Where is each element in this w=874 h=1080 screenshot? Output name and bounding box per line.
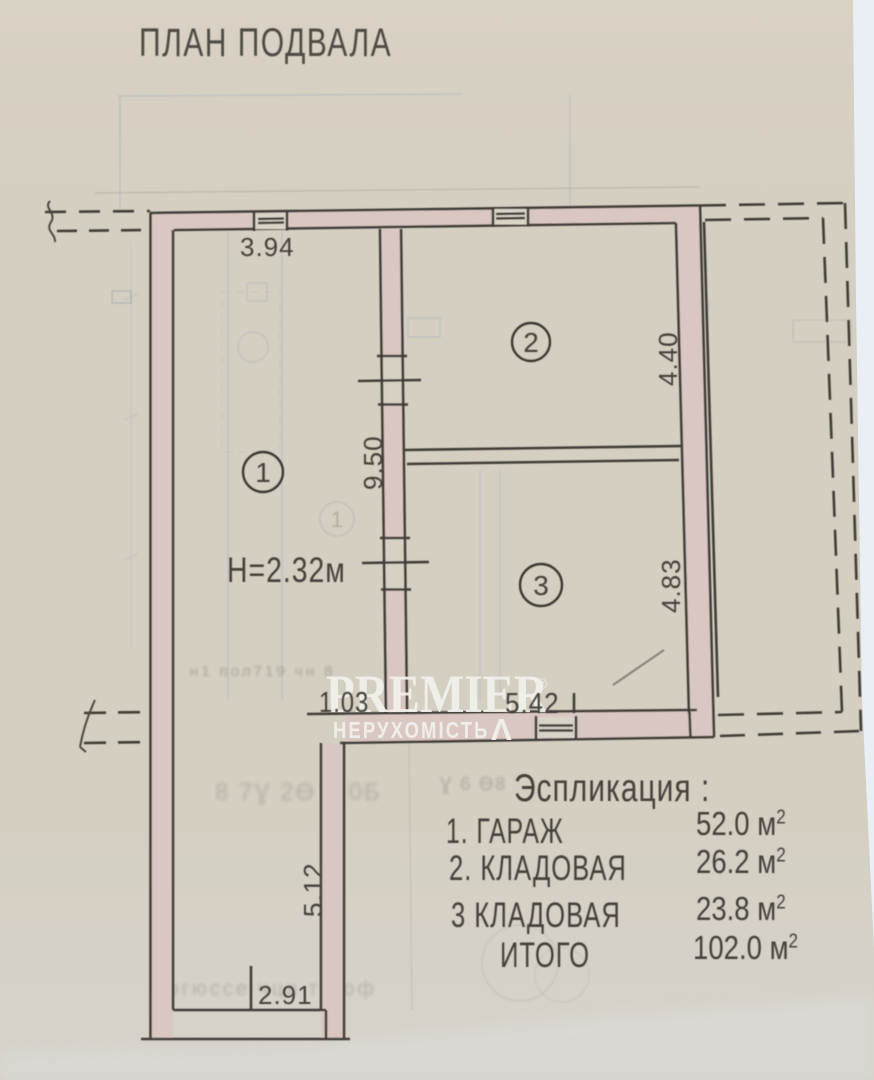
svg-text:2.91: 2.91 xyxy=(258,980,313,1010)
svg-text:3.94: 3.94 xyxy=(240,232,295,262)
svg-text:ИТОГО: ИТОГО xyxy=(500,935,590,975)
svg-text:9.50: 9.50 xyxy=(358,435,388,490)
svg-text:H=2.32м: H=2.32м xyxy=(227,550,346,590)
svg-text:52.0 м2: 52.0 м2 xyxy=(696,806,786,843)
svg-text:Эспликация :: Эспликация : xyxy=(514,767,710,810)
svg-text:1: 1 xyxy=(255,457,271,488)
svg-text:4.40: 4.40 xyxy=(653,331,683,386)
svg-text:н1 пол719 чн 8: н1 пол719 чн 8 xyxy=(190,663,335,680)
svg-text:23.8 м2: 23.8 м2 xyxy=(696,891,786,928)
svg-text:26.2 м2: 26.2 м2 xyxy=(696,844,786,881)
svg-text:1: 1 xyxy=(331,507,343,532)
svg-text:102.0 м2: 102.0 м2 xyxy=(693,930,798,967)
svg-text:3 КЛАДОВАЯ: 3 КЛАДОВАЯ xyxy=(451,895,621,935)
svg-text:ПЛАН ПОДВАЛА: ПЛАН ПОДВАЛА xyxy=(139,20,392,65)
svg-text:3: 3 xyxy=(533,570,549,601)
svg-text:2. КЛАДОВАЯ: 2. КЛАДОВАЯ xyxy=(449,848,627,888)
svg-text:2: 2 xyxy=(523,327,539,358)
svg-text:5.42: 5.42 xyxy=(505,687,560,720)
svg-text:НЕРУХОМІСТЬ: НЕРУХОМІСТЬ xyxy=(333,718,489,743)
svg-text:1. ГАРАЖ: 1. ГАРАЖ xyxy=(446,812,564,851)
svg-text:1.03: 1.03 xyxy=(319,686,369,719)
svg-text:Ɣ 6 Ɵ8: Ɣ 6 Ɵ8 xyxy=(440,774,507,794)
svg-text:8 7Ɣ 2Ɵ 4 0Б: 8 7Ɣ 2Ɵ 4 0Б xyxy=(215,779,382,806)
svg-text:4.83: 4.83 xyxy=(656,558,686,613)
svg-text:5.12: 5.12 xyxy=(298,862,328,917)
